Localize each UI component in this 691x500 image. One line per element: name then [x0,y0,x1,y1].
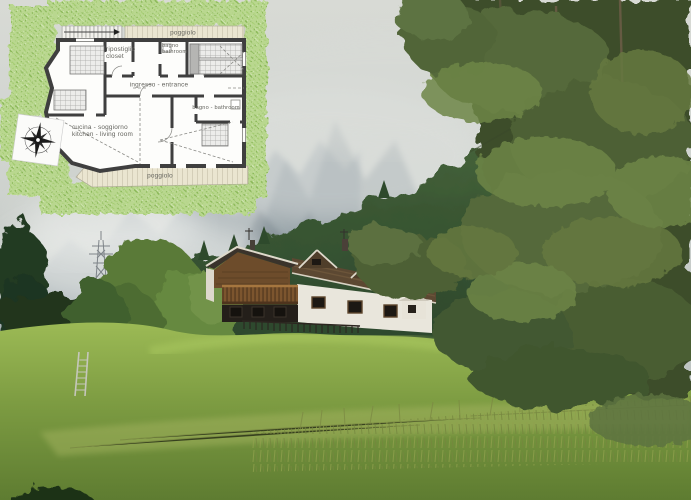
label-bath-top-en: bathroom [162,49,187,55]
label-bath-right: bagno - bathroom [192,105,239,111]
floor-plan-overlay: poggiolo poggiolo ripostiglio closet bag… [0,0,272,222]
screenshot-root: poggiolo poggiolo ripostiglio closet bag… [0,0,691,500]
label-balcony-top: poggiolo [170,29,196,36]
label-living-en: kitchen - living room [72,131,133,138]
label-closet-it: ripostiglio [106,46,135,53]
label-bath-top-it: bagno [162,43,179,49]
plan-stairs [62,26,122,39]
label-balcony-bottom: poggiolo [147,172,173,179]
wood-balcony [222,286,298,303]
label-entrance: ingresso - entrance [130,81,189,88]
label-bath-top: bagno bathroom [162,43,187,55]
label-living: cucina - soggiorno kitchen - living room [72,124,133,138]
label-living-it: cucina - soggiorno [72,124,128,131]
label-closet-en: closet [106,53,124,60]
compass-rose-icon [12,114,64,166]
label-closet: ripostiglio closet [106,46,135,60]
